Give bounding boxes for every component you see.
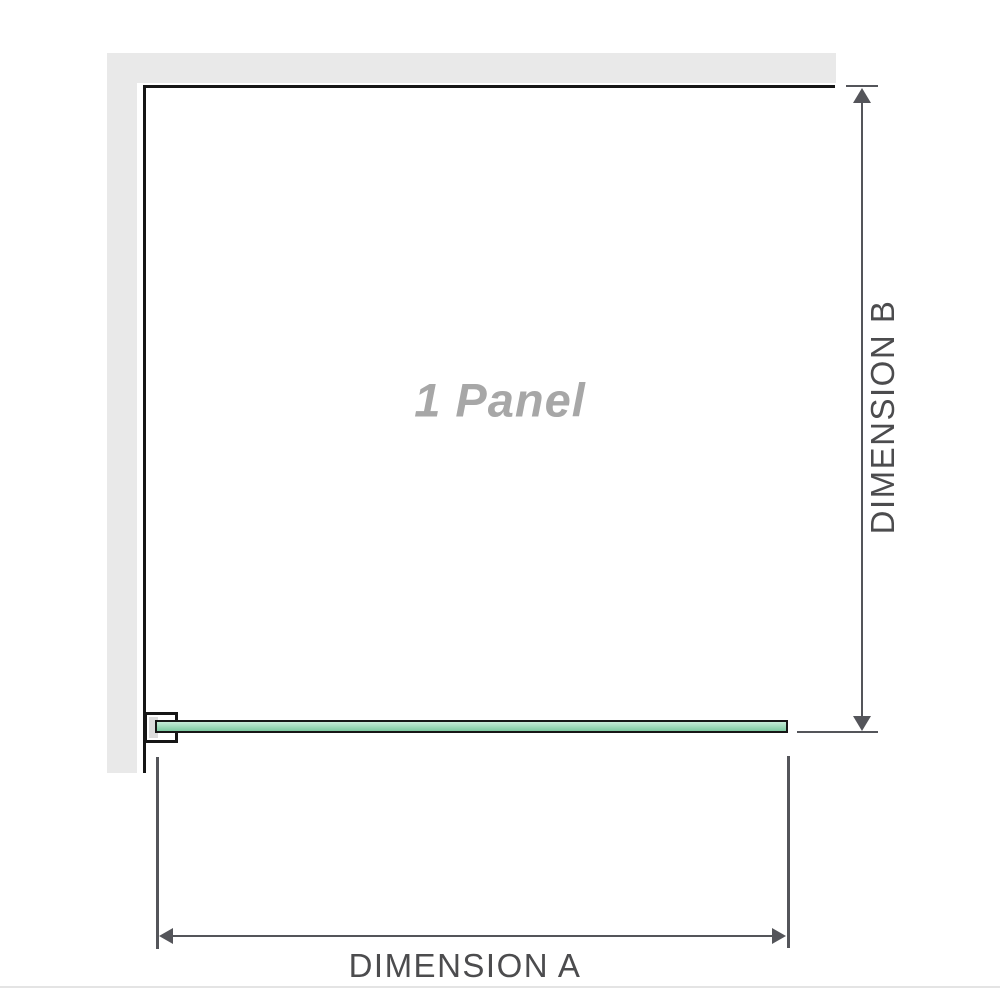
wall-left-bar bbox=[107, 53, 137, 773]
panel-count-label: 1 Panel bbox=[414, 373, 586, 428]
dimension-a-tick-left bbox=[156, 757, 159, 949]
arrow-left-icon bbox=[159, 928, 173, 944]
wall-top-bar bbox=[107, 53, 836, 83]
dimension-a-label: DIMENSION A bbox=[349, 947, 582, 985]
dimension-b-line bbox=[861, 98, 864, 720]
arrow-right-icon bbox=[772, 928, 786, 944]
arrow-up-icon bbox=[853, 88, 871, 103]
panel-outline-left bbox=[143, 85, 146, 773]
dimension-a-tick-right bbox=[787, 756, 790, 948]
diagram-canvas: 1 Panel DIMENSION B DIMENSION A bbox=[0, 0, 1000, 1000]
glass-panel-bar bbox=[155, 720, 788, 733]
dimension-b-label: DIMENSION B bbox=[864, 300, 902, 535]
panel-outline-top bbox=[143, 85, 835, 88]
page-bottom-divider bbox=[0, 986, 1000, 988]
dimension-a-line bbox=[168, 935, 776, 938]
dimension-b-tick-top bbox=[846, 85, 878, 88]
arrow-down-icon bbox=[853, 716, 871, 731]
